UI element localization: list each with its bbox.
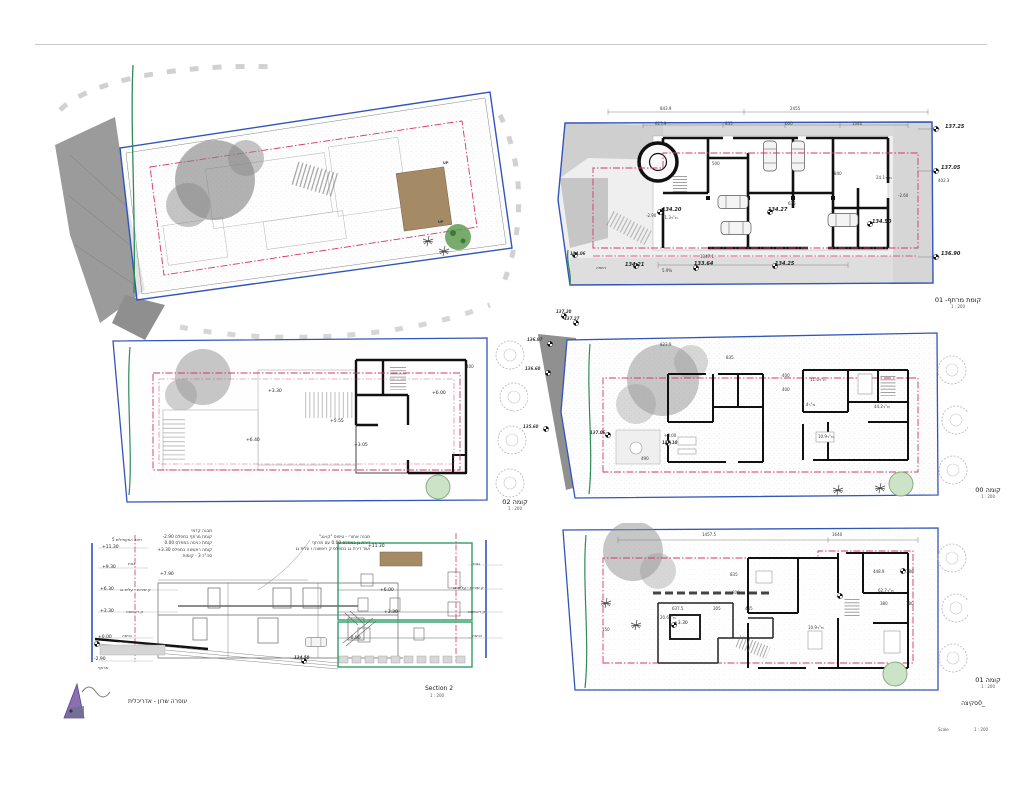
dim-label: 835 xyxy=(725,122,733,126)
spot-elevation: 134.50 xyxy=(294,656,309,660)
sheet-top-rule xyxy=(35,44,987,45)
dim-label: 1457.5 xyxy=(702,533,716,537)
area-label: מ"ר24.1 xyxy=(876,176,892,180)
spot-elevation: 134.25 xyxy=(775,262,794,267)
dim-label: 180 xyxy=(906,570,914,574)
level-label: +3.30 xyxy=(384,611,398,616)
level-label: -2.90 xyxy=(646,214,656,218)
spot-elevation: 137.10 xyxy=(662,441,677,445)
dim-label: 823.9 xyxy=(655,122,666,126)
dim-label: 448.9 xyxy=(873,570,884,574)
ramp-label: רמפה xyxy=(596,266,606,270)
site-annotation-blocks-top xyxy=(60,66,280,110)
storey-label: ק שירות - עלית גג xyxy=(453,586,484,590)
level-label: +9.30 xyxy=(102,566,116,571)
area-label: מ"ר71.3 xyxy=(662,216,678,220)
dim-label: 835 xyxy=(726,356,734,360)
dim-label: 675 xyxy=(788,202,796,206)
ground-patio xyxy=(616,430,660,464)
section-rear-building xyxy=(306,543,473,667)
panel-title-ground: קומה 00 xyxy=(948,487,1024,494)
level-label: +6.00 xyxy=(432,392,446,397)
spot-elevation: 134.21 xyxy=(625,263,644,268)
spot-elevation: 137.27 xyxy=(564,317,579,321)
dim-label: 600 xyxy=(785,122,793,126)
spot-elevation: 133.64 xyxy=(694,262,713,267)
dim-label: 445 xyxy=(745,607,753,611)
storey-label: גגות xyxy=(128,562,135,566)
spot-elevation: 134.06 xyxy=(570,252,585,256)
level-label: +6.00 xyxy=(380,589,394,594)
level-label: +7.90 xyxy=(160,573,174,578)
spot-elevation: 137.06 xyxy=(590,431,605,435)
level-label: +6.40 xyxy=(246,439,260,444)
storey-label: ק ראשונה xyxy=(126,610,143,614)
spot-elevation: 137.05 xyxy=(941,166,960,171)
level-label: +3.30 xyxy=(100,610,114,615)
level-label: -0.00 xyxy=(349,637,361,642)
dim-label: 1640 xyxy=(832,533,842,537)
ground-plan-drawing xyxy=(528,312,968,517)
spot-elevation: 136.90 xyxy=(941,252,960,257)
dim-label: 380 xyxy=(880,602,888,606)
dim-label: 840 xyxy=(834,172,842,176)
panel-scale: 1 : 200 xyxy=(430,694,444,698)
architect-logo xyxy=(58,678,138,723)
storey-label: גגות xyxy=(473,562,480,566)
ground-stipple xyxy=(558,332,943,502)
panel-title-section: Section 2 xyxy=(425,686,453,692)
site-roof-patch xyxy=(396,167,452,231)
area-label: מ"ר20.6 xyxy=(660,616,676,620)
logo-wave-icon xyxy=(82,687,110,697)
section-ramp xyxy=(94,639,338,669)
spot-elevation: 136.60 xyxy=(525,367,540,371)
spot-elevation: 137.20 xyxy=(556,310,571,314)
first-plan-drawing xyxy=(558,523,968,713)
storey-label: ק ראשונה xyxy=(468,610,485,614)
dim-label: 1040 xyxy=(852,122,862,126)
dim-label: 400 xyxy=(466,365,474,369)
spot-elevation: 136.97 xyxy=(527,338,542,342)
first-green-bush xyxy=(883,662,907,686)
area-label: מ"ר44.2 xyxy=(874,405,890,409)
roof-penthouse-walls xyxy=(356,360,466,473)
slope-label: 5.9% xyxy=(662,269,672,273)
sketch-label: _0סקיצה xyxy=(938,701,1008,707)
storey-label: מרתף xyxy=(98,666,108,670)
scale-label: Scale xyxy=(938,728,949,732)
first-trees-right xyxy=(938,544,968,672)
level-label: +5.55 xyxy=(330,420,344,425)
site-plan-drawing xyxy=(30,55,540,345)
area-label: מ"ר62.7 xyxy=(878,589,894,593)
drawing-sheet: UP UP xyxy=(0,0,1024,786)
panel-scale: 1 : 200 xyxy=(948,495,1024,499)
basement-gray-right xyxy=(893,122,933,283)
site-annotation-blocks-bottom xyxy=(180,305,490,337)
spot-elevation: 134.27 xyxy=(768,208,787,213)
spot-elevation: 137.25 xyxy=(945,125,964,130)
spot-elevation: 134.50 xyxy=(872,220,891,225)
ground-trees-right xyxy=(938,356,968,484)
note-line: סה"כ 3 - קומות xyxy=(128,554,212,560)
roof-plan-drawing xyxy=(108,335,528,520)
basement-gray-top xyxy=(663,122,932,136)
panel-title-basement: קומת מרתף- 01 xyxy=(918,297,998,304)
site-tree-green xyxy=(445,224,471,250)
level-label: +6.30 xyxy=(100,588,114,593)
dim-label: 150 xyxy=(602,628,610,632)
storey-label: כניסה xyxy=(122,634,132,638)
dim-label: 637.5 xyxy=(672,607,683,611)
panel-scale: 1 : 200 xyxy=(918,305,998,309)
dim-label: 2455 xyxy=(790,107,800,111)
dim-label: 823.9 xyxy=(660,343,671,347)
site-up-label: UP xyxy=(438,221,443,225)
area-label: מ"ר11.6 xyxy=(810,378,826,382)
level-label: +3.05 xyxy=(354,444,368,449)
dim-label: 835 xyxy=(730,573,738,577)
level-label: +0.00 xyxy=(664,434,676,438)
note-line: ועוד דירת גג במפלס ק ראשונה ו עלית גג xyxy=(266,547,370,553)
dim-label: 180 xyxy=(906,602,914,606)
storey-label: ק שירות - עלית גג xyxy=(120,588,151,592)
level-label: -2.60 xyxy=(898,194,908,198)
dim-label: 490 xyxy=(641,457,649,461)
panel-scale: 1 : 200 xyxy=(948,685,1024,689)
dim-label: 400 xyxy=(782,388,790,392)
basement-plan-drawing xyxy=(548,98,948,298)
level-label: -2.90 xyxy=(94,658,106,663)
architect-name: עופרה שרון - אדריכלית xyxy=(128,699,187,705)
roof-green-bush xyxy=(426,475,450,499)
dim-label: 1347.1 xyxy=(700,255,714,259)
dim-label: 400 xyxy=(782,374,790,378)
area-label: מ"ר7.4 xyxy=(802,403,815,407)
roof-trees-right xyxy=(496,341,528,497)
basement-gray-bottom xyxy=(570,256,933,285)
ground-green-bush xyxy=(889,472,913,496)
logo-dot-icon xyxy=(69,709,72,712)
scale-value: 1 : 200 xyxy=(974,728,988,732)
level-label: +3.30 xyxy=(268,390,282,395)
note-rear-building: מבנה אחורי - טיפוס "קו-גג" דירת גן במפלס… xyxy=(266,535,370,554)
dim-label: 402.3 xyxy=(938,179,949,183)
spot-elevation: 135.60 xyxy=(523,425,538,429)
basement-circular-ramp xyxy=(639,143,677,181)
area-label: מ"ר10.9 xyxy=(808,626,824,630)
storey-label: כניסה xyxy=(472,634,482,638)
dim-label: 500 xyxy=(712,162,720,166)
dim-label: 305 xyxy=(713,607,721,611)
level-label: +11.30 xyxy=(102,546,119,551)
panel-title-first: קומה 01 xyxy=(948,677,1024,684)
site-up-label: UP xyxy=(443,162,448,166)
spot-elevation: 134.20 xyxy=(662,208,681,213)
level-label: +11.30 xyxy=(368,545,385,550)
level-label: +0.00 xyxy=(98,636,112,641)
dim-label: 800 xyxy=(732,591,740,595)
area-label: מ"ר10.9 xyxy=(818,435,834,439)
dim-label: 843.9 xyxy=(660,107,671,111)
level-label: +3.30 xyxy=(674,622,688,627)
note-front-building: מבנה קדמי קומת מרתף במפלס 2.90- קומת כני… xyxy=(128,529,212,560)
